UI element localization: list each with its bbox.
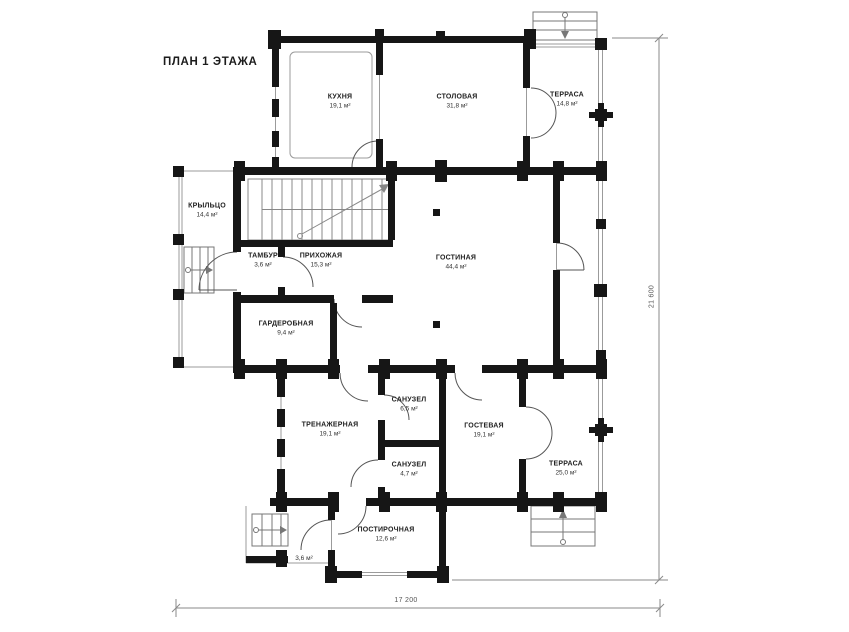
room-label-small-porch: 3,6 м² <box>295 555 312 563</box>
room-name: ГАРДЕРОБНАЯ <box>259 321 314 330</box>
room-label-living-room: ГОСТИНАЯ 44,4 м² <box>436 255 476 272</box>
exterior-stairs-top <box>533 12 597 40</box>
room-name: ПОСТИРОЧНАЯ <box>358 527 415 536</box>
room-area: 25,0 м² <box>549 469 583 477</box>
structural-columns <box>173 38 613 504</box>
room-name: ТЕРРАСА <box>549 461 583 470</box>
room-area: 31,8 м² <box>436 102 477 110</box>
room-area: 14,4 м² <box>188 211 226 219</box>
room-area: 44,4 м² <box>436 263 476 271</box>
room-label-bathroom-1: САНУЗЕЛ 6,5 м² <box>392 397 427 414</box>
railings-and-guides <box>179 36 603 578</box>
walls <box>233 29 607 583</box>
room-name: САНУЗЕЛ <box>392 462 427 471</box>
room-area: 6,5 м² <box>392 405 427 413</box>
room-area: 14,8 м² <box>550 100 584 108</box>
room-name: СТОЛОВАЯ <box>436 94 477 103</box>
room-label-laundry: ПОСТИРОЧНАЯ 12,6 м² <box>358 527 415 544</box>
room-area: 19,1 м² <box>328 102 353 110</box>
room-name: КУХНЯ <box>328 94 353 103</box>
room-area: 19,1 м² <box>464 431 504 439</box>
room-area: 9,4 м² <box>259 329 314 337</box>
dimension-label-vertical: 21 600 <box>649 267 656 327</box>
room-label-terrace-top: ТЕРРАСА 14,8 м² <box>550 92 584 109</box>
room-area: 12,6 м² <box>358 535 415 543</box>
room-name: САНУЗЕЛ <box>392 397 427 406</box>
page-title: ПЛАН 1 ЭТАЖА <box>163 56 257 68</box>
room-name: ТЕРРАСА <box>550 92 584 101</box>
room-label-porch: КРЫЛЬЦО 14,4 м² <box>188 203 226 220</box>
room-area: 19,1 м² <box>302 430 359 438</box>
room-name: ТАМБУР <box>248 253 278 262</box>
porch-stairs-bottom-left <box>252 514 288 546</box>
dimension-label-horizontal: 17 200 <box>376 597 436 604</box>
floor-plan-drawing <box>0 0 849 632</box>
room-label-dining: СТОЛОВАЯ 31,8 м² <box>436 94 477 111</box>
room-label-wardrobe: ГАРДЕРОБНАЯ 9,4 м² <box>259 321 314 338</box>
room-label-kitchen: КУХНЯ 19,1 м² <box>328 94 353 111</box>
room-area: 3,6 м² <box>248 261 278 269</box>
interior-staircase <box>248 179 390 240</box>
room-label-bathroom-2: САНУЗЕЛ 4,7 м² <box>392 462 427 479</box>
room-name: КРЫЛЬЦО <box>188 203 226 212</box>
room-label-terrace-bottom: ТЕРРАСА 25,0 м² <box>549 461 583 478</box>
room-label-vestibule: ТАМБУР 3,6 м² <box>248 253 278 270</box>
room-name: ПРИХОЖАЯ <box>300 253 343 262</box>
room-area: 4,7 м² <box>392 470 427 478</box>
room-label-guest-room: ГОСТЕВАЯ 19,1 м² <box>464 423 504 440</box>
room-label-hallway: ПРИХОЖАЯ 15,3 м² <box>300 253 343 270</box>
room-area: 3,6 м² <box>295 555 312 563</box>
room-label-gym: ТРЕНАЖЕРНАЯ 19,1 м² <box>302 422 359 439</box>
room-name: ГОСТЕВАЯ <box>464 423 504 432</box>
room-area: 15,3 м² <box>300 261 343 269</box>
room-name: ГОСТИНАЯ <box>436 255 476 264</box>
room-name: ТРЕНАЖЕРНАЯ <box>302 422 359 431</box>
floor-plan-page: ПЛАН 1 ЭТАЖА КУХНЯ 19,1 м² СТОЛОВАЯ 31,8… <box>0 0 849 632</box>
